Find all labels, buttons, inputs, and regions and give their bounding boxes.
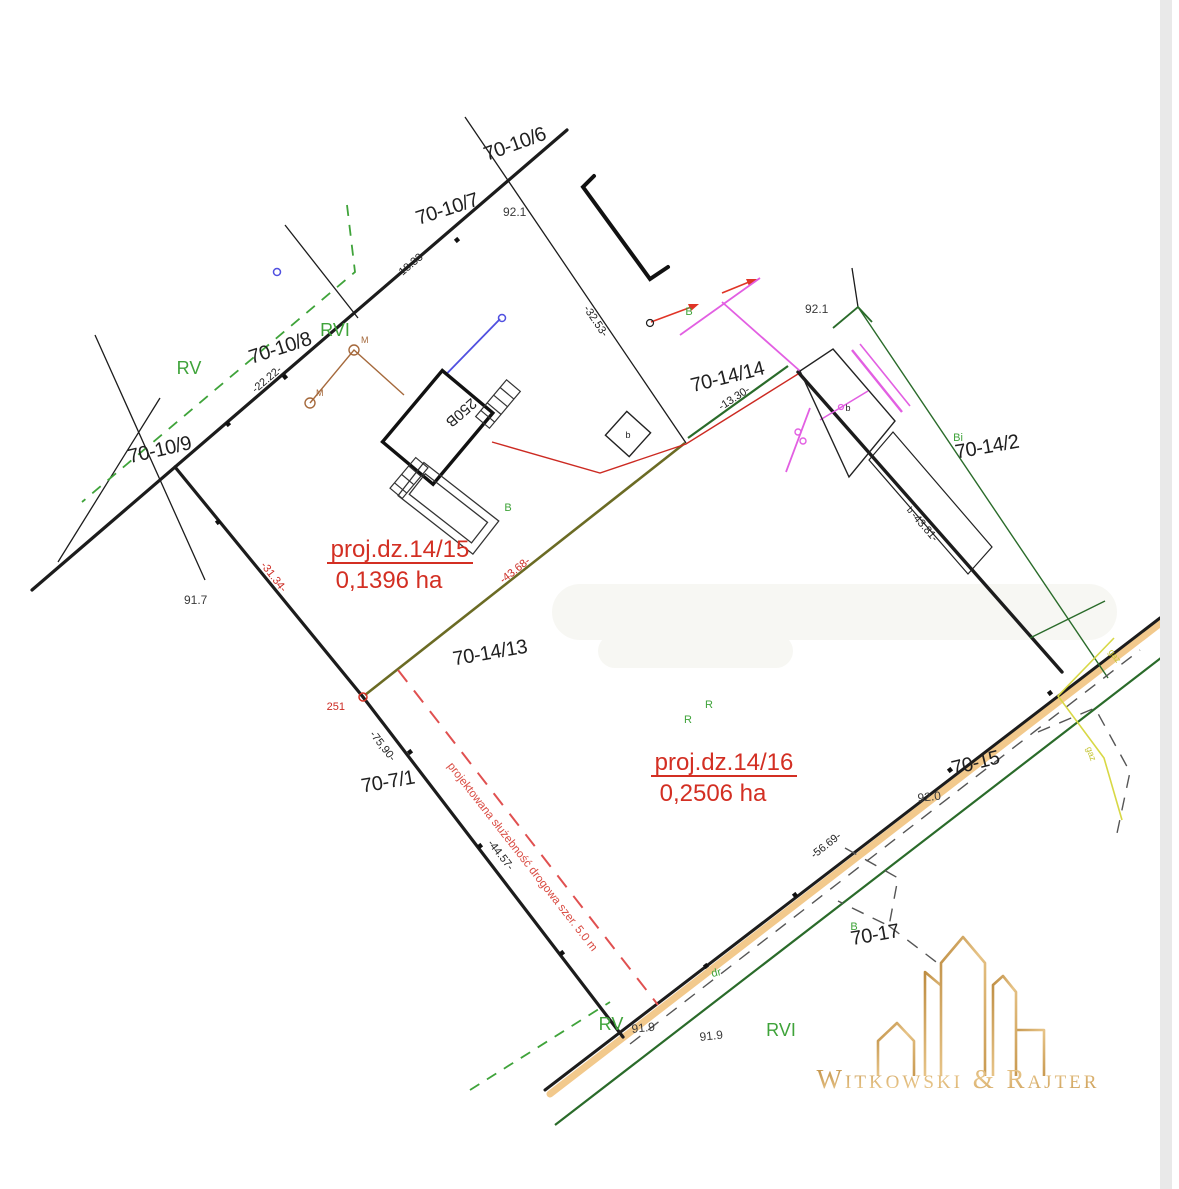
elevation-91-7: 91.7: [184, 593, 208, 607]
elevation-92-1-b: 92.1: [805, 302, 829, 316]
point-number-251: 251: [327, 701, 345, 713]
logo-wordmark: Witkowski & Rajter: [817, 1064, 1100, 1094]
cadastral-map-page: 70-10/6 70-10/7 70-10/8 70-10/9 70-14/14…: [0, 0, 1179, 1189]
project-parcel-1-name: proj.dz.14/15: [331, 536, 470, 563]
land-use-rv-bottom: RV: [599, 1014, 624, 1034]
project-parcel-1-area: 0,1396 ha: [336, 567, 443, 594]
logo-building-right-tower: [993, 976, 1016, 1076]
elevation-91-9-b: 91.9: [699, 1028, 724, 1044]
pole-mark-2: M: [361, 335, 369, 345]
elevation-92-0: 92.0: [917, 789, 942, 805]
land-use-rvi-bottom: RVI: [766, 1020, 796, 1040]
land-use-rvi-top: RVI: [320, 320, 350, 340]
land-use-b-center: B: [504, 502, 511, 514]
building-label-b-outbuilding: b: [625, 430, 630, 440]
pole-mark-1: M: [316, 388, 324, 398]
land-use-b-arrow: B: [685, 306, 692, 318]
scrollbar-track[interactable]: [1160, 0, 1172, 1189]
elevation-92-1-a: 92.1: [503, 205, 527, 219]
land-use-b-70-17: B: [850, 921, 857, 933]
logo-building-tower: [941, 937, 985, 1076]
land-use-r-2: R: [684, 714, 692, 726]
building-label-b-main: b: [845, 403, 850, 413]
cadastral-map: 70-10/6 70-10/7 70-10/8 70-10/9 70-14/14…: [0, 0, 1179, 1189]
land-use-r-1: R: [705, 699, 713, 711]
project-parcel-2-area: 0,2506 ha: [660, 780, 767, 807]
land-use-bi: Bi: [953, 432, 963, 444]
elevation-91-9-a: 91.9: [631, 1020, 656, 1036]
land-use-rv-top: RV: [177, 358, 202, 378]
project-parcel-2-name: proj.dz.14/16: [655, 749, 794, 776]
page-edge: [1172, 0, 1179, 1189]
